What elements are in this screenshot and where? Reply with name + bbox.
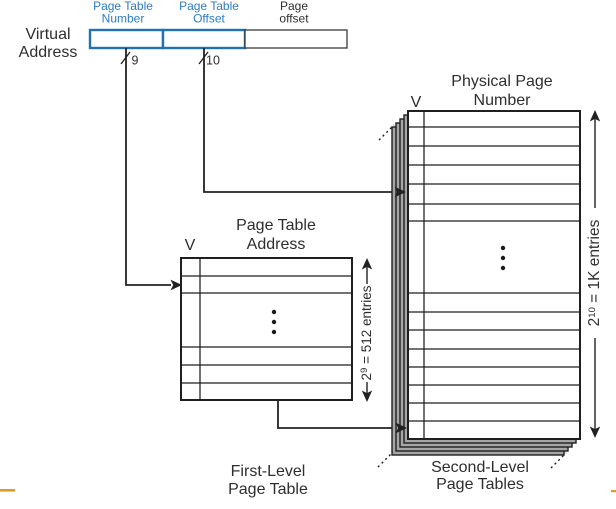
svg-text:Address: Address — [19, 44, 78, 61]
svg-text:Address: Address — [247, 236, 306, 253]
svg-text:Page Tables: Page Tables — [436, 476, 524, 493]
svg-text:Offset: Offset — [193, 12, 225, 26]
svg-text:Physical Page: Physical Page — [451, 73, 552, 90]
svg-text:Page Table: Page Table — [236, 217, 316, 234]
svg-text:Second-Level: Second-Level — [431, 459, 529, 476]
svg-text:29 = 512 entries: 29 = 512 entries — [359, 285, 374, 380]
svg-text:V: V — [411, 94, 422, 111]
svg-text:Number: Number — [102, 12, 145, 26]
svg-text:10: 10 — [206, 54, 220, 68]
svg-text:Number: Number — [474, 92, 532, 109]
svg-text:9: 9 — [132, 54, 139, 68]
svg-text:Page Table: Page Table — [228, 481, 308, 498]
svg-text:First-Level: First-Level — [231, 463, 306, 480]
svg-text:offset: offset — [279, 12, 309, 26]
svg-text:V: V — [185, 237, 196, 254]
svg-text:Virtual: Virtual — [25, 26, 70, 43]
